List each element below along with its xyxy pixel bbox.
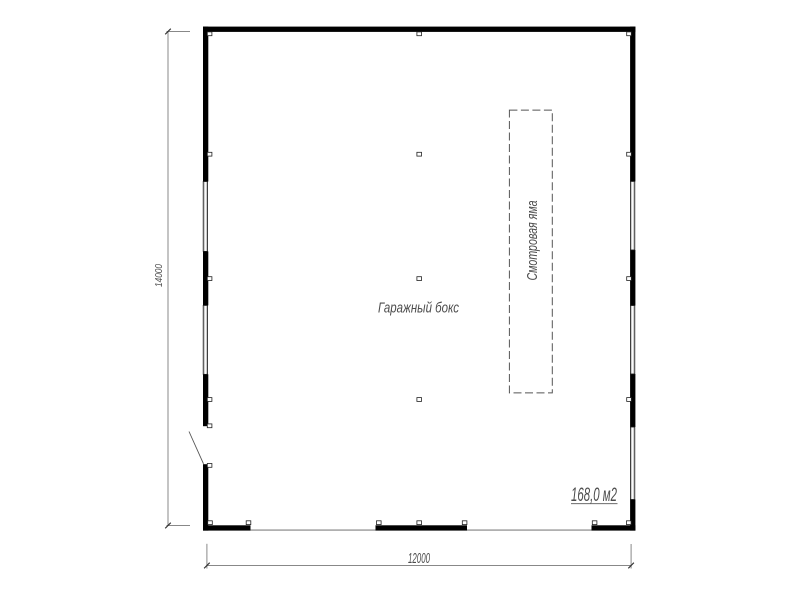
svg-text:168,0 м2: 168,0 м2 bbox=[571, 485, 617, 506]
svg-text:Смотровая яма: Смотровая яма bbox=[524, 201, 541, 281]
svg-text:14000: 14000 bbox=[153, 264, 165, 287]
svg-text:12000: 12000 bbox=[408, 551, 430, 567]
svg-text:Гаражный бокс: Гаражный бокс bbox=[378, 300, 459, 317]
